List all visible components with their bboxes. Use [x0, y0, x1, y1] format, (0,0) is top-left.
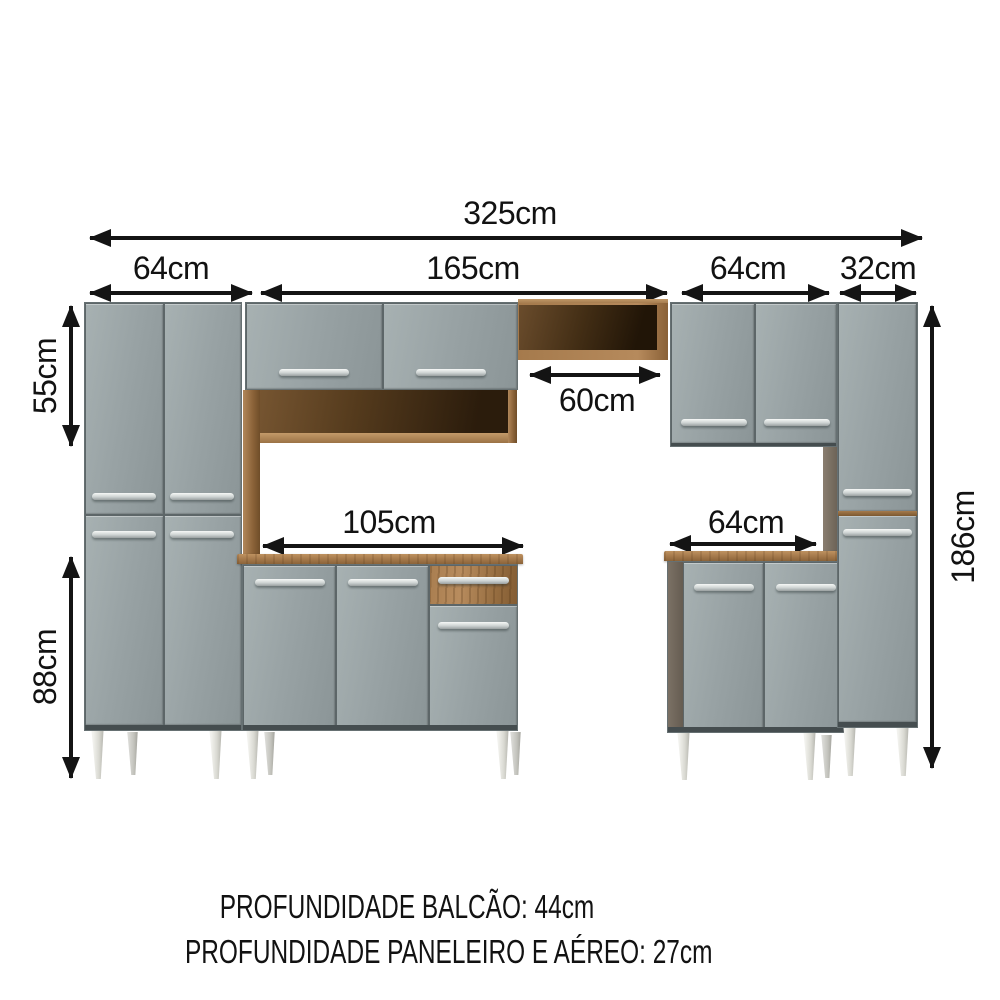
door-handle: [348, 579, 418, 586]
cabinet-leg: [90, 731, 105, 779]
tall-slim-cabinet-body: [837, 302, 918, 728]
dim-hutch-width-arrow: [261, 291, 667, 295]
dim-total-width-label: 325cm: [430, 197, 590, 229]
left-tall-cabinet: [84, 302, 242, 782]
cabinet-leg: [208, 731, 223, 779]
door-handle: [438, 622, 509, 629]
door-handle: [681, 419, 747, 426]
hutch-side-panel-left: [243, 390, 260, 554]
door-handle: [255, 579, 325, 586]
slim-cabinet-side-panel: [823, 447, 837, 553]
cabinet-leg: [802, 733, 817, 780]
left-tall-cabinet-body: [84, 302, 242, 731]
cabinet-leg: [126, 732, 139, 775]
shelf-side-edge: [508, 390, 517, 443]
dim-aereo-width-label: 64cm: [688, 252, 808, 284]
dim-right-base-label: 64cm: [686, 506, 806, 538]
dim-lower-height-label: 88cm: [29, 602, 61, 732]
right-base-cabinet: [664, 551, 849, 782]
cabinet-door: [86, 304, 163, 514]
hutch-countertop: [237, 554, 523, 564]
cabinet-plinth: [85, 725, 241, 730]
footer-depth-paneleiro: PROFUNDIDADE PANELEIRO E AÉREO: 27cm: [185, 929, 629, 974]
hutch-upper-cabinet: [245, 302, 518, 390]
door-handle: [694, 584, 754, 591]
door-handle: [279, 369, 349, 376]
kitchen-cabinet-dimension-diagram: 325cm 64cm 165cm 64cm 32cm 55cm 88cm 60c…: [0, 0, 1000, 1000]
dim-lower-height-arrow: [69, 557, 73, 778]
cabinet-door: [337, 566, 428, 727]
hutch-open-shelf: [245, 390, 517, 443]
cabinet-plinth: [668, 727, 845, 732]
door-handle: [843, 489, 912, 496]
door-handle: [843, 529, 912, 536]
door-handle: [92, 493, 156, 500]
dim-hutch-width-label: 165cm: [398, 252, 548, 284]
cabinet-plinth: [838, 722, 917, 727]
door-handle: [764, 419, 830, 426]
dim-upper-height-label: 55cm: [29, 311, 61, 441]
cabinet-door: [165, 304, 241, 514]
cabinet-door: [839, 516, 916, 722]
niche-interior: [245, 390, 517, 433]
dim-slim-width-label: 32cm: [818, 252, 938, 284]
cabinet-door: [165, 516, 241, 725]
drawer-handle: [438, 577, 509, 584]
right-base-cabinet-body: [667, 561, 846, 733]
center-hutch-cabinet: [237, 297, 668, 782]
cabinet-door: [86, 516, 163, 725]
door-handle: [776, 584, 836, 591]
cabinet-plinth: [243, 725, 517, 730]
drawer-front: [430, 566, 517, 604]
door-handle: [92, 531, 156, 538]
dim-right-base-arrow: [670, 542, 816, 546]
right-upper-cabinet: [670, 302, 837, 447]
dim-paneleiro-width-label: 64cm: [111, 252, 231, 284]
cabinet-plinth: [671, 443, 836, 446]
cabinet-leg: [820, 735, 833, 778]
open-niche-60: [518, 303, 668, 360]
footer-depth-balcao: PROFUNDIDADE BALCÃO: 44cm: [185, 884, 629, 929]
dim-aereo-width-arrow: [682, 291, 829, 295]
cabinet-leg: [263, 732, 276, 775]
dim-total-height-label: 186cm: [947, 472, 979, 602]
cabinet-door: [244, 566, 335, 727]
cabinet-leg: [842, 728, 857, 776]
shelf-wood-lip: [245, 433, 517, 443]
cabinet-leg: [495, 731, 510, 779]
cabinet-leg: [509, 732, 522, 775]
cabinet-door: [247, 304, 382, 389]
dim-total-height-arrow: [930, 306, 934, 768]
hutch-base-cabinet: [242, 564, 518, 731]
door-handle: [416, 369, 486, 376]
base-side-panel-left: [668, 562, 683, 732]
cabinet-door: [384, 304, 517, 389]
cabinet-door: [839, 304, 916, 511]
tall-slim-cabinet: [837, 302, 918, 777]
door-handle: [170, 531, 234, 538]
dim-paneleiro-width-arrow: [90, 291, 252, 295]
dim-slim-width-arrow: [840, 291, 916, 295]
cabinet-leg: [676, 733, 691, 780]
cabinet-leg: [895, 728, 910, 776]
base-countertop: [664, 551, 849, 561]
niche-interior: [519, 305, 657, 350]
cabinet-leg: [245, 731, 260, 779]
dim-total-width-arrow: [90, 236, 922, 240]
dim-upper-height-arrow: [69, 306, 73, 446]
footer-specs: PROFUNDIDADE BALCÃO: 44cm PROFUNDIDADE P…: [107, 884, 707, 974]
door-handle: [170, 493, 234, 500]
